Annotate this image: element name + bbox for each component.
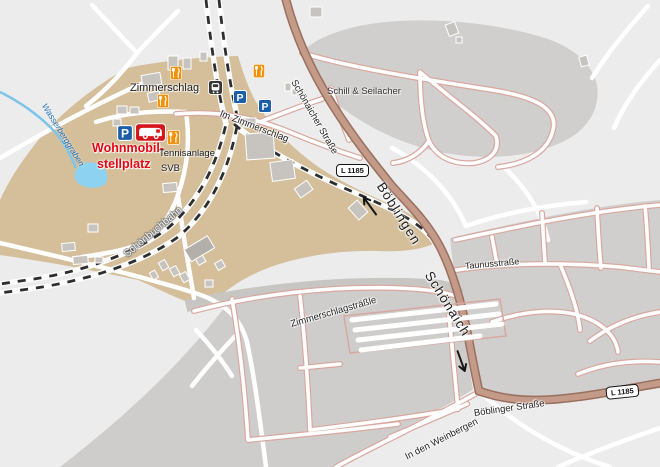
street-label-taunusstrasse: Taunusstraße xyxy=(465,257,520,271)
direction-arrow-schoenaich xyxy=(447,347,474,381)
water-label-wasserberggraben: Wasserberggraben xyxy=(40,102,85,168)
map-canvas: ZimmerschlagIm ZimmerschlagSchönaicher S… xyxy=(0,0,660,467)
railway-label-schoenbuchbahn: Schönbuchbahn xyxy=(123,206,185,260)
dest-label-boeblingen: Böblingen xyxy=(374,180,423,247)
poi-label-svb: SVB xyxy=(161,164,180,174)
place-label-schill-seilacher: Schill & Seilacher xyxy=(327,87,401,97)
train-station-icon xyxy=(208,80,223,100)
poi-label-stellplatz: stellplatz xyxy=(97,158,151,171)
road-ref-badge-l1185-top: L 1185 xyxy=(336,164,369,177)
place-label-zimmerschlag: Zimmerschlag xyxy=(130,83,199,94)
parking-icon: P xyxy=(117,125,133,146)
street-label-im-zimmerschlag: Im Zimmerschlag xyxy=(218,109,289,144)
street-label-boeblinger-strasse: Böblinger Straße xyxy=(473,399,545,418)
street-label-zimmerschlagstraessle: Zimmerschlagsträßle xyxy=(290,296,378,330)
street-label-in-den-weinbergen: In den Weinbergen xyxy=(404,417,480,462)
restaurant-icon xyxy=(167,130,180,150)
rv-campsite-icon xyxy=(135,123,166,147)
poi-label-tennisanlage: Tennisanlage xyxy=(159,149,215,159)
restaurant-icon xyxy=(170,66,182,85)
map-overlay: ZimmerschlagIm ZimmerschlagSchönaicher S… xyxy=(0,0,660,467)
restaurant-icon xyxy=(253,64,265,83)
dest-label-schoenaich: Schönaich xyxy=(422,269,473,339)
parking-icon: P xyxy=(233,90,247,109)
parking-icon: P xyxy=(258,99,272,118)
svg-text:P: P xyxy=(261,101,268,113)
restaurant-icon xyxy=(157,94,169,113)
svg-text:P: P xyxy=(236,92,243,104)
road-ref-badge-l1185-bottom: L 1185 xyxy=(605,384,639,400)
svg-text:P: P xyxy=(121,126,129,140)
